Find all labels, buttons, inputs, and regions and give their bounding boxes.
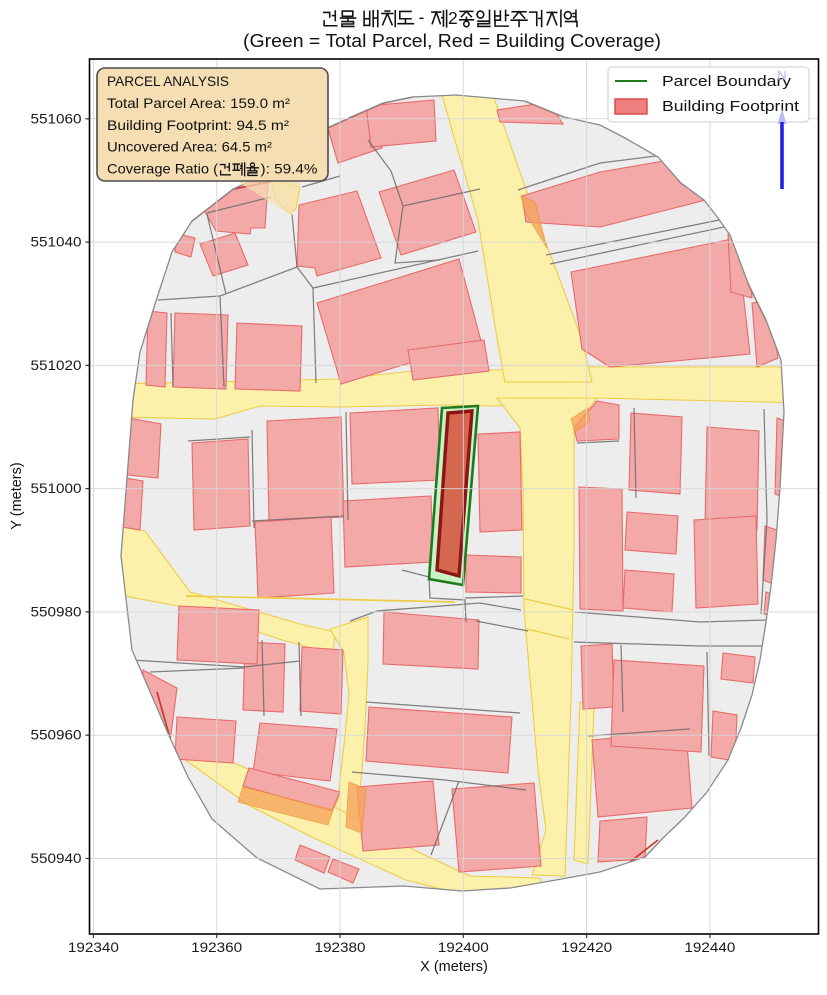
svg-text:N: N [777,68,786,83]
svg-text:Parcel Boundary: Parcel Boundary [662,73,792,90]
svg-text:192380: 192380 [315,939,366,955]
svg-text:551020: 551020 [31,357,82,373]
svg-text:Total Parcel Area: 159.0 m²: Total Parcel Area: 159.0 m² [107,95,290,111]
svg-text:Uncovered Area: 64.5 m²: Uncovered Area: 64.5 m² [107,139,272,155]
svg-text:551060: 551060 [31,110,82,126]
svg-text:Building Footprint: Building Footprint [662,98,800,115]
svg-text:Y (meters): Y (meters) [9,462,25,529]
svg-text:551000: 551000 [31,480,82,496]
svg-text:550980: 550980 [31,603,82,619]
svg-text:2: 2 [448,8,458,28]
svg-text:-: - [419,7,425,27]
svg-text:(Green = Total Parcel, Red = B: (Green = Total Parcel, Red = Building Co… [243,31,661,51]
svg-text:550940: 550940 [31,850,82,866]
svg-text:Building Footprint: 94.5 m²: Building Footprint: 94.5 m² [107,117,289,133]
svg-text:551040: 551040 [31,234,82,250]
svg-text:192400: 192400 [438,939,489,955]
svg-text:192340: 192340 [68,939,119,955]
svg-text:PARCEL ANALYSIS: PARCEL ANALYSIS [107,73,229,89]
svg-text:Coverage Ratio (: Coverage Ratio ( [107,161,218,177]
svg-text:192360: 192360 [191,939,242,955]
svg-text:X (meters): X (meters) [420,959,488,975]
svg-text:): 59.4%: ): 59.4% [261,161,318,177]
svg-text:192440: 192440 [684,939,735,955]
svg-text:192420: 192420 [561,939,612,955]
svg-text:550960: 550960 [31,727,82,743]
